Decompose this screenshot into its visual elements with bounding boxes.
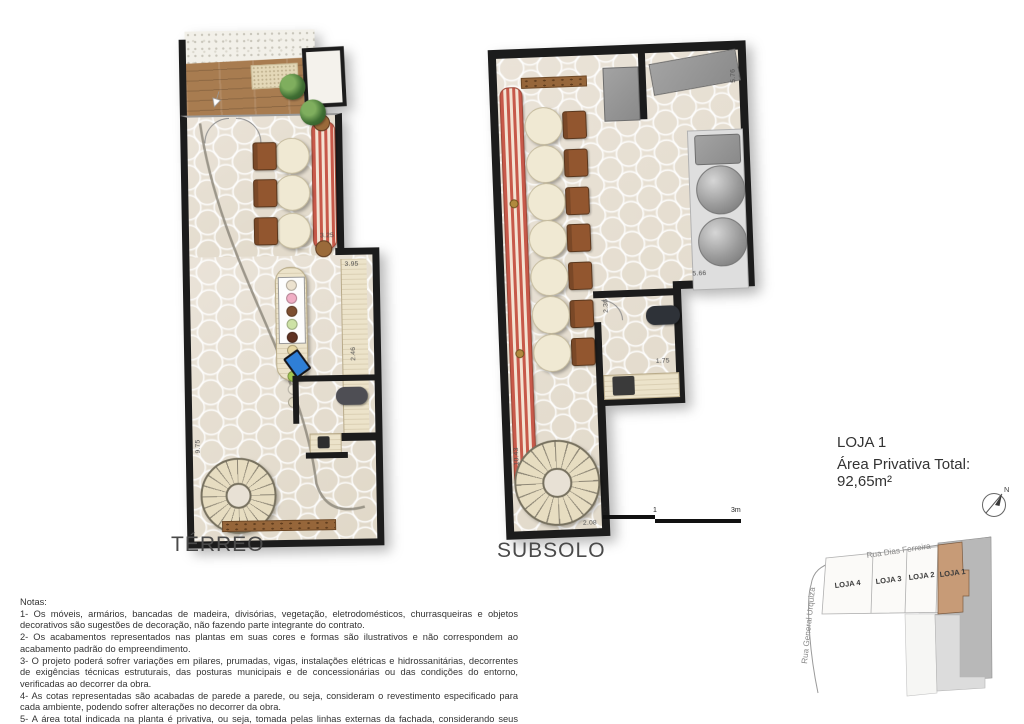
- dim-label: 9.75: [195, 439, 202, 453]
- entry-arrow-icon: [207, 89, 225, 109]
- chair: [568, 261, 593, 290]
- plan-subsolo: 5.76 5.66 2.36 1.75 10.43 2.08: [488, 40, 769, 542]
- cabinet: [602, 66, 640, 121]
- note-item: 4- As cotas representadas são acabadas d…: [20, 691, 518, 714]
- chair: [562, 110, 587, 139]
- scale-bar: 0 1 3m: [598, 500, 750, 528]
- dim-label: 2.36: [602, 299, 610, 313]
- site-map: LOJA 4 LOJA 3 LOJA 2 LOJA 1 Rua Dias Fer…: [795, 530, 1023, 724]
- dim-label: 2.08: [583, 519, 597, 527]
- dim-label: 5.66: [692, 270, 706, 278]
- chair: [569, 299, 594, 328]
- chair: [254, 217, 278, 245]
- chair: [564, 148, 589, 177]
- chair: [565, 186, 590, 215]
- bathroom-bench: [336, 387, 368, 406]
- street-label: Rua General Urquiza: [800, 586, 817, 664]
- machine: [694, 134, 741, 166]
- svg-text:3m: 3m: [731, 507, 741, 514]
- note-item: 1- Os móveis, armários, bancadas de made…: [20, 609, 518, 632]
- banquette-bench: [311, 121, 337, 249]
- dim-label: 2.46: [350, 347, 357, 361]
- chair: [253, 179, 277, 207]
- dim-label: 3.95: [344, 261, 358, 268]
- svg-text:N: N: [1004, 485, 1009, 494]
- dim-label: 3.25: [320, 232, 334, 239]
- gelato-display-case: [278, 277, 306, 344]
- dim-label: 10.43: [513, 447, 521, 465]
- note-item: 2- Os acabamentos representados nas plan…: [20, 632, 518, 655]
- note-item: 3- O projeto poderá sofrer variações em …: [20, 656, 518, 691]
- unit-name: LOJA 1: [837, 434, 886, 451]
- notes-title: Notas:: [20, 597, 518, 609]
- bathroom-sink-counter: [646, 305, 681, 325]
- lot-column: [905, 614, 937, 696]
- floorplan-sheet: 3.25 3.95 2.46 9.75 TÉRREO: [0, 0, 1024, 724]
- bar-shelf: [222, 519, 336, 532]
- cooktop: [612, 376, 635, 396]
- chair: [571, 337, 596, 366]
- dim-label: 5.76: [730, 69, 738, 83]
- subsolo-label: SUBSOLO: [497, 539, 606, 563]
- terreo-label: TÉRREO: [171, 533, 265, 557]
- plan-terreo: 3.25 3.95 2.46 9.75: [178, 28, 387, 553]
- svg-text:1: 1: [653, 507, 657, 514]
- note-item: 5- A área total indicada na planta é pri…: [20, 714, 518, 724]
- north-arrow-icon: N: [976, 482, 1016, 522]
- svg-text:0: 0: [603, 507, 607, 514]
- chair: [252, 142, 276, 170]
- dim-label: 1.75: [656, 357, 670, 365]
- sink: [318, 436, 330, 448]
- chair: [566, 223, 591, 252]
- notes-block: Notas: 1- Os móveis, armários, bancadas …: [20, 597, 518, 724]
